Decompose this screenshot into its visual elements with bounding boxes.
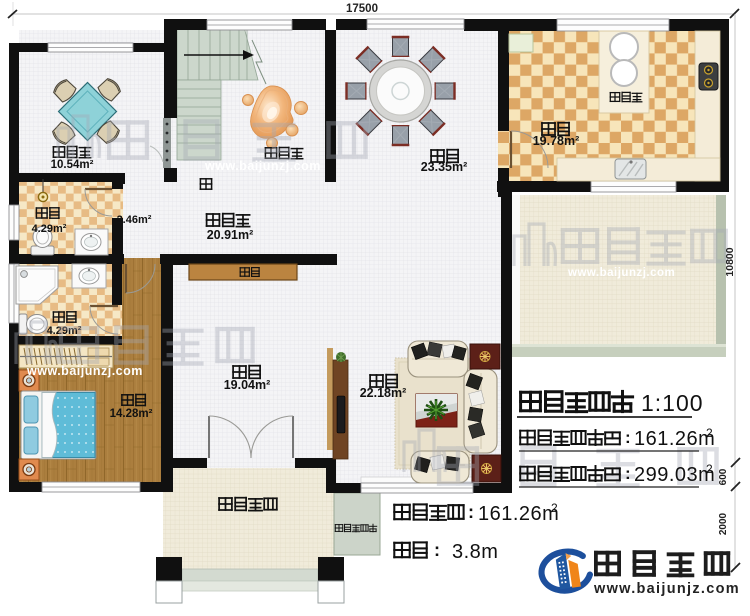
svg-text:www.baijunzj.com: www.baijunzj.com xyxy=(204,159,321,173)
svg-text:1:100: 1:100 xyxy=(641,390,704,416)
svg-text:23.35m²: 23.35m² xyxy=(421,160,468,174)
svg-text:600: 600 xyxy=(718,468,729,485)
svg-text::: : xyxy=(625,428,631,447)
svg-text::: : xyxy=(468,502,474,522)
svg-text:161.26m: 161.26m xyxy=(478,503,559,525)
svg-text:2.46m²: 2.46m² xyxy=(117,214,152,226)
svg-text:2: 2 xyxy=(706,462,713,476)
svg-text::: : xyxy=(434,540,440,560)
svg-text:19.04m²: 19.04m² xyxy=(224,378,271,392)
svg-text:4.29m²: 4.29m² xyxy=(32,223,67,235)
svg-text:22.18m²: 22.18m² xyxy=(360,386,407,400)
svg-text:2: 2 xyxy=(706,426,713,440)
svg-text:20.91m²: 20.91m² xyxy=(207,228,254,242)
svg-text:2: 2 xyxy=(551,501,558,515)
svg-text:www.baijunjz.com: www.baijunjz.com xyxy=(593,581,740,597)
svg-text:10.54m²: 10.54m² xyxy=(51,159,94,171)
svg-text:www.baijunzj.com: www.baijunzj.com xyxy=(567,267,675,279)
svg-text:19.78m²: 19.78m² xyxy=(533,134,580,148)
svg-text:2000: 2000 xyxy=(718,512,729,535)
svg-text:17500: 17500 xyxy=(346,3,378,15)
svg-text:299.03m: 299.03m xyxy=(634,464,715,486)
svg-text:www.baijunzj.com: www.baijunzj.com xyxy=(26,364,143,378)
svg-text:3.8m: 3.8m xyxy=(452,541,498,563)
svg-text::: : xyxy=(625,464,631,483)
svg-text:10800: 10800 xyxy=(724,247,736,276)
svg-text:161.26m: 161.26m xyxy=(634,428,715,450)
svg-text:14.28m²: 14.28m² xyxy=(110,408,153,420)
